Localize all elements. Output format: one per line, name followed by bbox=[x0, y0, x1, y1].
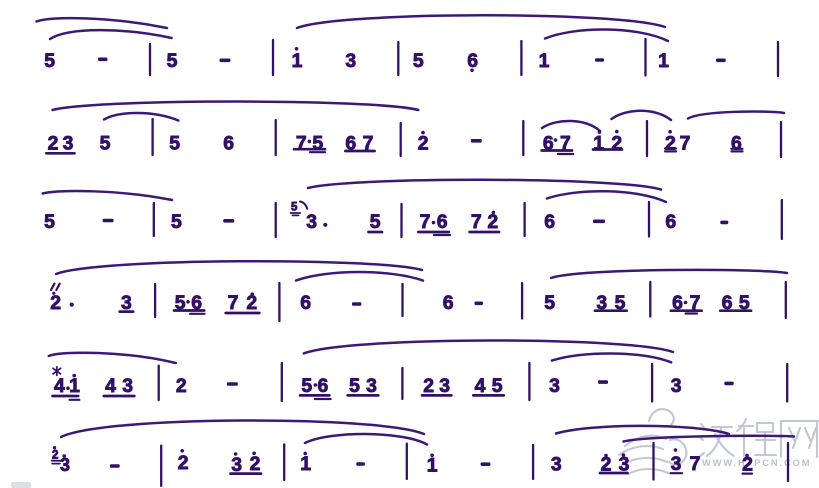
svg-text:3: 3 bbox=[122, 375, 133, 397]
svg-text:7: 7 bbox=[420, 211, 431, 233]
svg-text:2: 2 bbox=[487, 211, 498, 233]
svg-text:7: 7 bbox=[680, 132, 691, 154]
svg-text:7: 7 bbox=[471, 211, 482, 233]
svg-text:2: 2 bbox=[611, 132, 622, 154]
svg-text:3: 3 bbox=[345, 50, 356, 72]
svg-text:6: 6 bbox=[467, 50, 478, 72]
svg-text:1: 1 bbox=[292, 50, 303, 72]
svg-text:4: 4 bbox=[475, 375, 486, 397]
svg-text:6: 6 bbox=[300, 292, 311, 314]
svg-text:2: 2 bbox=[176, 375, 187, 397]
svg-text:2: 2 bbox=[50, 292, 61, 314]
svg-text:1: 1 bbox=[539, 50, 550, 72]
svg-text:6: 6 bbox=[443, 292, 454, 314]
svg-text:2: 2 bbox=[52, 450, 58, 462]
svg-text:4: 4 bbox=[105, 375, 116, 397]
svg-text:3: 3 bbox=[439, 375, 450, 397]
svg-text:5: 5 bbox=[44, 211, 55, 233]
svg-text:1: 1 bbox=[69, 375, 80, 397]
svg-text:3: 3 bbox=[63, 132, 74, 154]
svg-text:5: 5 bbox=[312, 132, 323, 154]
svg-text:6: 6 bbox=[544, 211, 555, 233]
svg-text:7: 7 bbox=[228, 292, 239, 314]
svg-text:2: 2 bbox=[418, 132, 429, 154]
svg-text:7: 7 bbox=[296, 132, 307, 154]
svg-text:3: 3 bbox=[671, 375, 682, 397]
svg-text:5: 5 bbox=[169, 132, 180, 154]
svg-text:5: 5 bbox=[167, 50, 178, 72]
svg-text:7: 7 bbox=[690, 453, 701, 475]
svg-text:5: 5 bbox=[370, 211, 381, 233]
svg-text:3: 3 bbox=[549, 375, 560, 397]
svg-text:5: 5 bbox=[544, 292, 555, 314]
svg-text:2: 2 bbox=[250, 453, 261, 475]
svg-text:5: 5 bbox=[413, 50, 424, 72]
svg-text:5: 5 bbox=[492, 375, 503, 397]
svg-text:5: 5 bbox=[301, 375, 312, 397]
svg-text:4: 4 bbox=[54, 375, 65, 397]
svg-text:5: 5 bbox=[171, 211, 182, 233]
svg-text:3: 3 bbox=[60, 455, 70, 475]
svg-text:5: 5 bbox=[291, 201, 298, 213]
svg-text:6: 6 bbox=[318, 375, 329, 397]
svg-text:1: 1 bbox=[300, 453, 311, 475]
svg-text:6: 6 bbox=[437, 211, 448, 233]
svg-text:5: 5 bbox=[349, 375, 360, 397]
svg-text:3: 3 bbox=[551, 454, 562, 476]
svg-text:3: 3 bbox=[366, 375, 377, 397]
svg-text:2: 2 bbox=[423, 375, 434, 397]
svg-text:6: 6 bbox=[223, 132, 234, 154]
svg-text:2: 2 bbox=[178, 452, 189, 474]
svg-text:1: 1 bbox=[427, 455, 438, 477]
svg-text:5: 5 bbox=[44, 50, 55, 72]
svg-text:3: 3 bbox=[671, 453, 682, 475]
svg-text:2: 2 bbox=[48, 132, 59, 154]
svg-text:1: 1 bbox=[593, 132, 604, 154]
svg-text:1: 1 bbox=[658, 50, 669, 72]
svg-text:3: 3 bbox=[306, 211, 317, 233]
svg-text:5: 5 bbox=[100, 132, 111, 154]
svg-text:WWW.HTPCN.COM: WWW.HTPCN.COM bbox=[702, 458, 811, 468]
svg-text:6: 6 bbox=[665, 211, 676, 233]
